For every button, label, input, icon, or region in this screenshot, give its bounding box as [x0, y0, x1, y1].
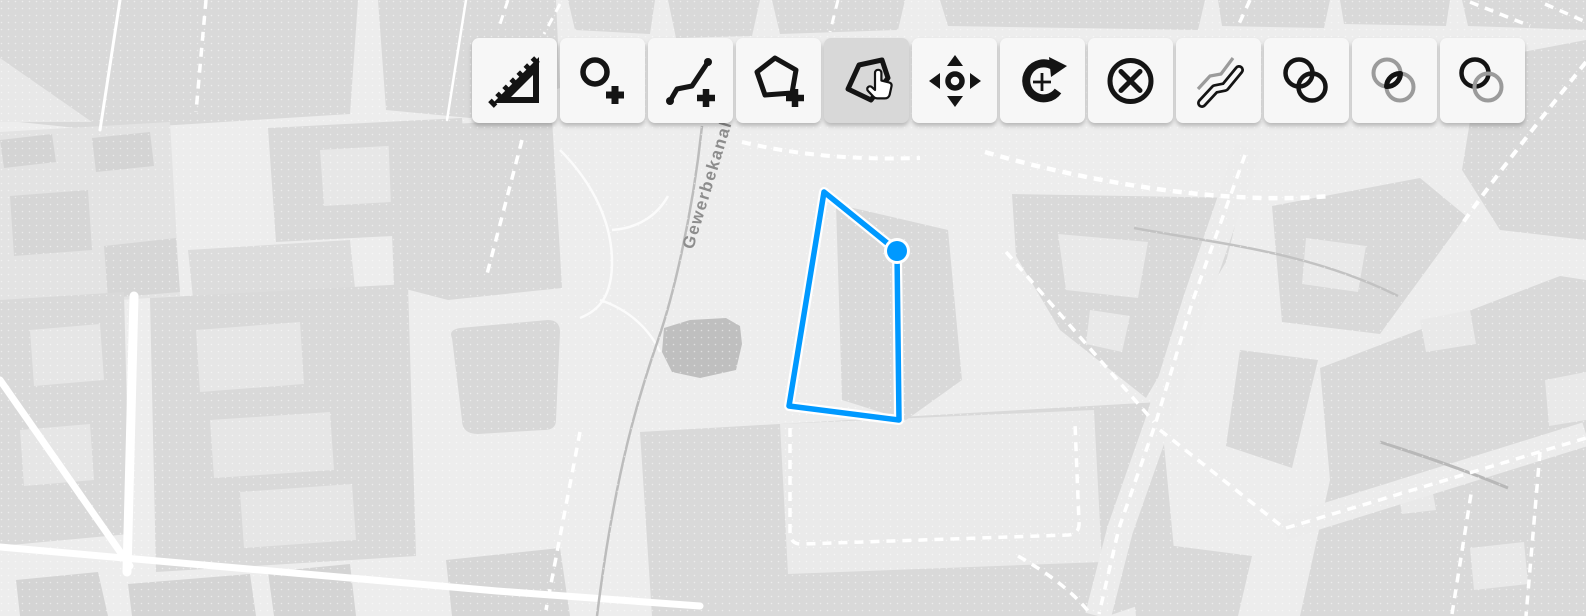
modify-polygon-icon	[839, 53, 895, 109]
difference-button[interactable]	[1440, 38, 1525, 123]
measure-button[interactable]	[472, 38, 557, 123]
delete-icon	[1103, 53, 1159, 109]
modify-button[interactable]	[824, 38, 909, 123]
measure-icon	[487, 53, 543, 109]
draw-polygon-button[interactable]	[736, 38, 821, 123]
offset-icon	[1191, 53, 1247, 109]
draw-polygon-icon	[751, 53, 807, 109]
draw-point-button[interactable]	[560, 38, 645, 123]
draw-line-icon	[663, 53, 719, 109]
draw-line-button[interactable]	[648, 38, 733, 123]
move-button[interactable]	[912, 38, 997, 123]
intersection-icon	[1367, 53, 1423, 109]
active-vertex-handle[interactable]	[887, 241, 907, 261]
union-icon	[1279, 53, 1335, 109]
union-button[interactable]	[1264, 38, 1349, 123]
difference-icon	[1455, 53, 1511, 109]
move-icon	[927, 53, 983, 109]
draw-point-icon	[575, 53, 631, 109]
intersection-button[interactable]	[1352, 38, 1437, 123]
offset-button[interactable]	[1176, 38, 1261, 123]
edit-toolbar	[472, 38, 1525, 123]
rotate-icon	[1015, 53, 1071, 109]
map-editor-window: Gewerbekanal	[0, 0, 1586, 616]
rotate-button[interactable]	[1000, 38, 1085, 123]
delete-button[interactable]	[1088, 38, 1173, 123]
